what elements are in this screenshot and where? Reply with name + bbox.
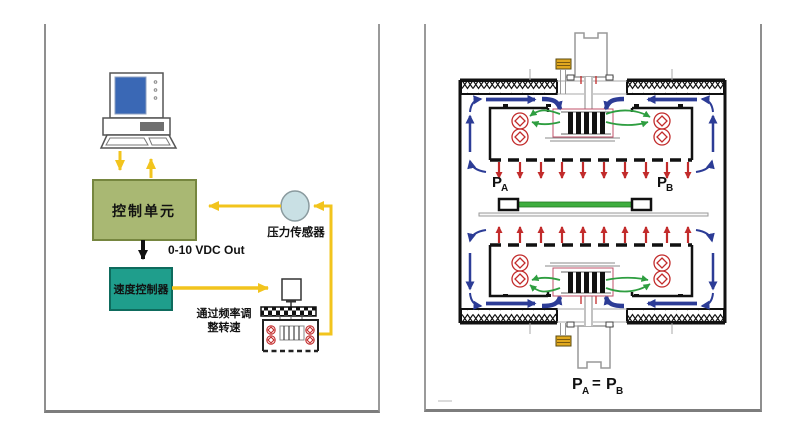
svg-text:B: B: [666, 183, 673, 194]
vdc-out-label: 0-10 VDC Out: [168, 243, 245, 257]
diagram-canvas: 控制单元 压力传感器 0-10 VDC Out 速度控制器 通过频率调 整转速: [0, 0, 805, 434]
substrate-bar: [499, 199, 651, 210]
blower-unit-icon: [261, 279, 318, 351]
svg-text:=: =: [592, 375, 601, 392]
pc-control-signal-arrows: [120, 151, 151, 178]
svg-text:B: B: [616, 386, 623, 397]
frequency-note-line1: 通过频率调: [197, 306, 252, 320]
speed-controller-label: 速度控制器: [114, 282, 170, 296]
svg-text:A: A: [501, 183, 508, 194]
frequency-note-line2: 整转速: [207, 320, 241, 334]
pressure-sensor-label: 压力传感器: [267, 225, 325, 239]
svg-text:A: A: [582, 386, 589, 397]
control-loop-diagram: 控制单元 压力传感器 0-10 VDC Out 速度控制器 通过频率调 整转速: [93, 73, 331, 351]
top-fan-motor-icon: [566, 33, 614, 111]
control-unit-label: 控制单元: [112, 203, 176, 219]
bottom-fan-motor-icon: [566, 294, 614, 368]
pressure-equation: P A = P B: [572, 375, 623, 397]
desktop-computer-icon: [101, 73, 176, 148]
air-levitation-diagram: P A P B P A = P B: [438, 33, 725, 401]
transport-rail: [479, 213, 708, 216]
pressure-sensor-icon: [281, 191, 309, 221]
screenshot-canvas: 控制单元 压力传感器 0-10 VDC Out 速度控制器 通过频率调 整转速: [0, 0, 805, 434]
pressure-label-pa: P A: [492, 174, 508, 194]
pressure-label-pb: P B: [657, 174, 673, 194]
